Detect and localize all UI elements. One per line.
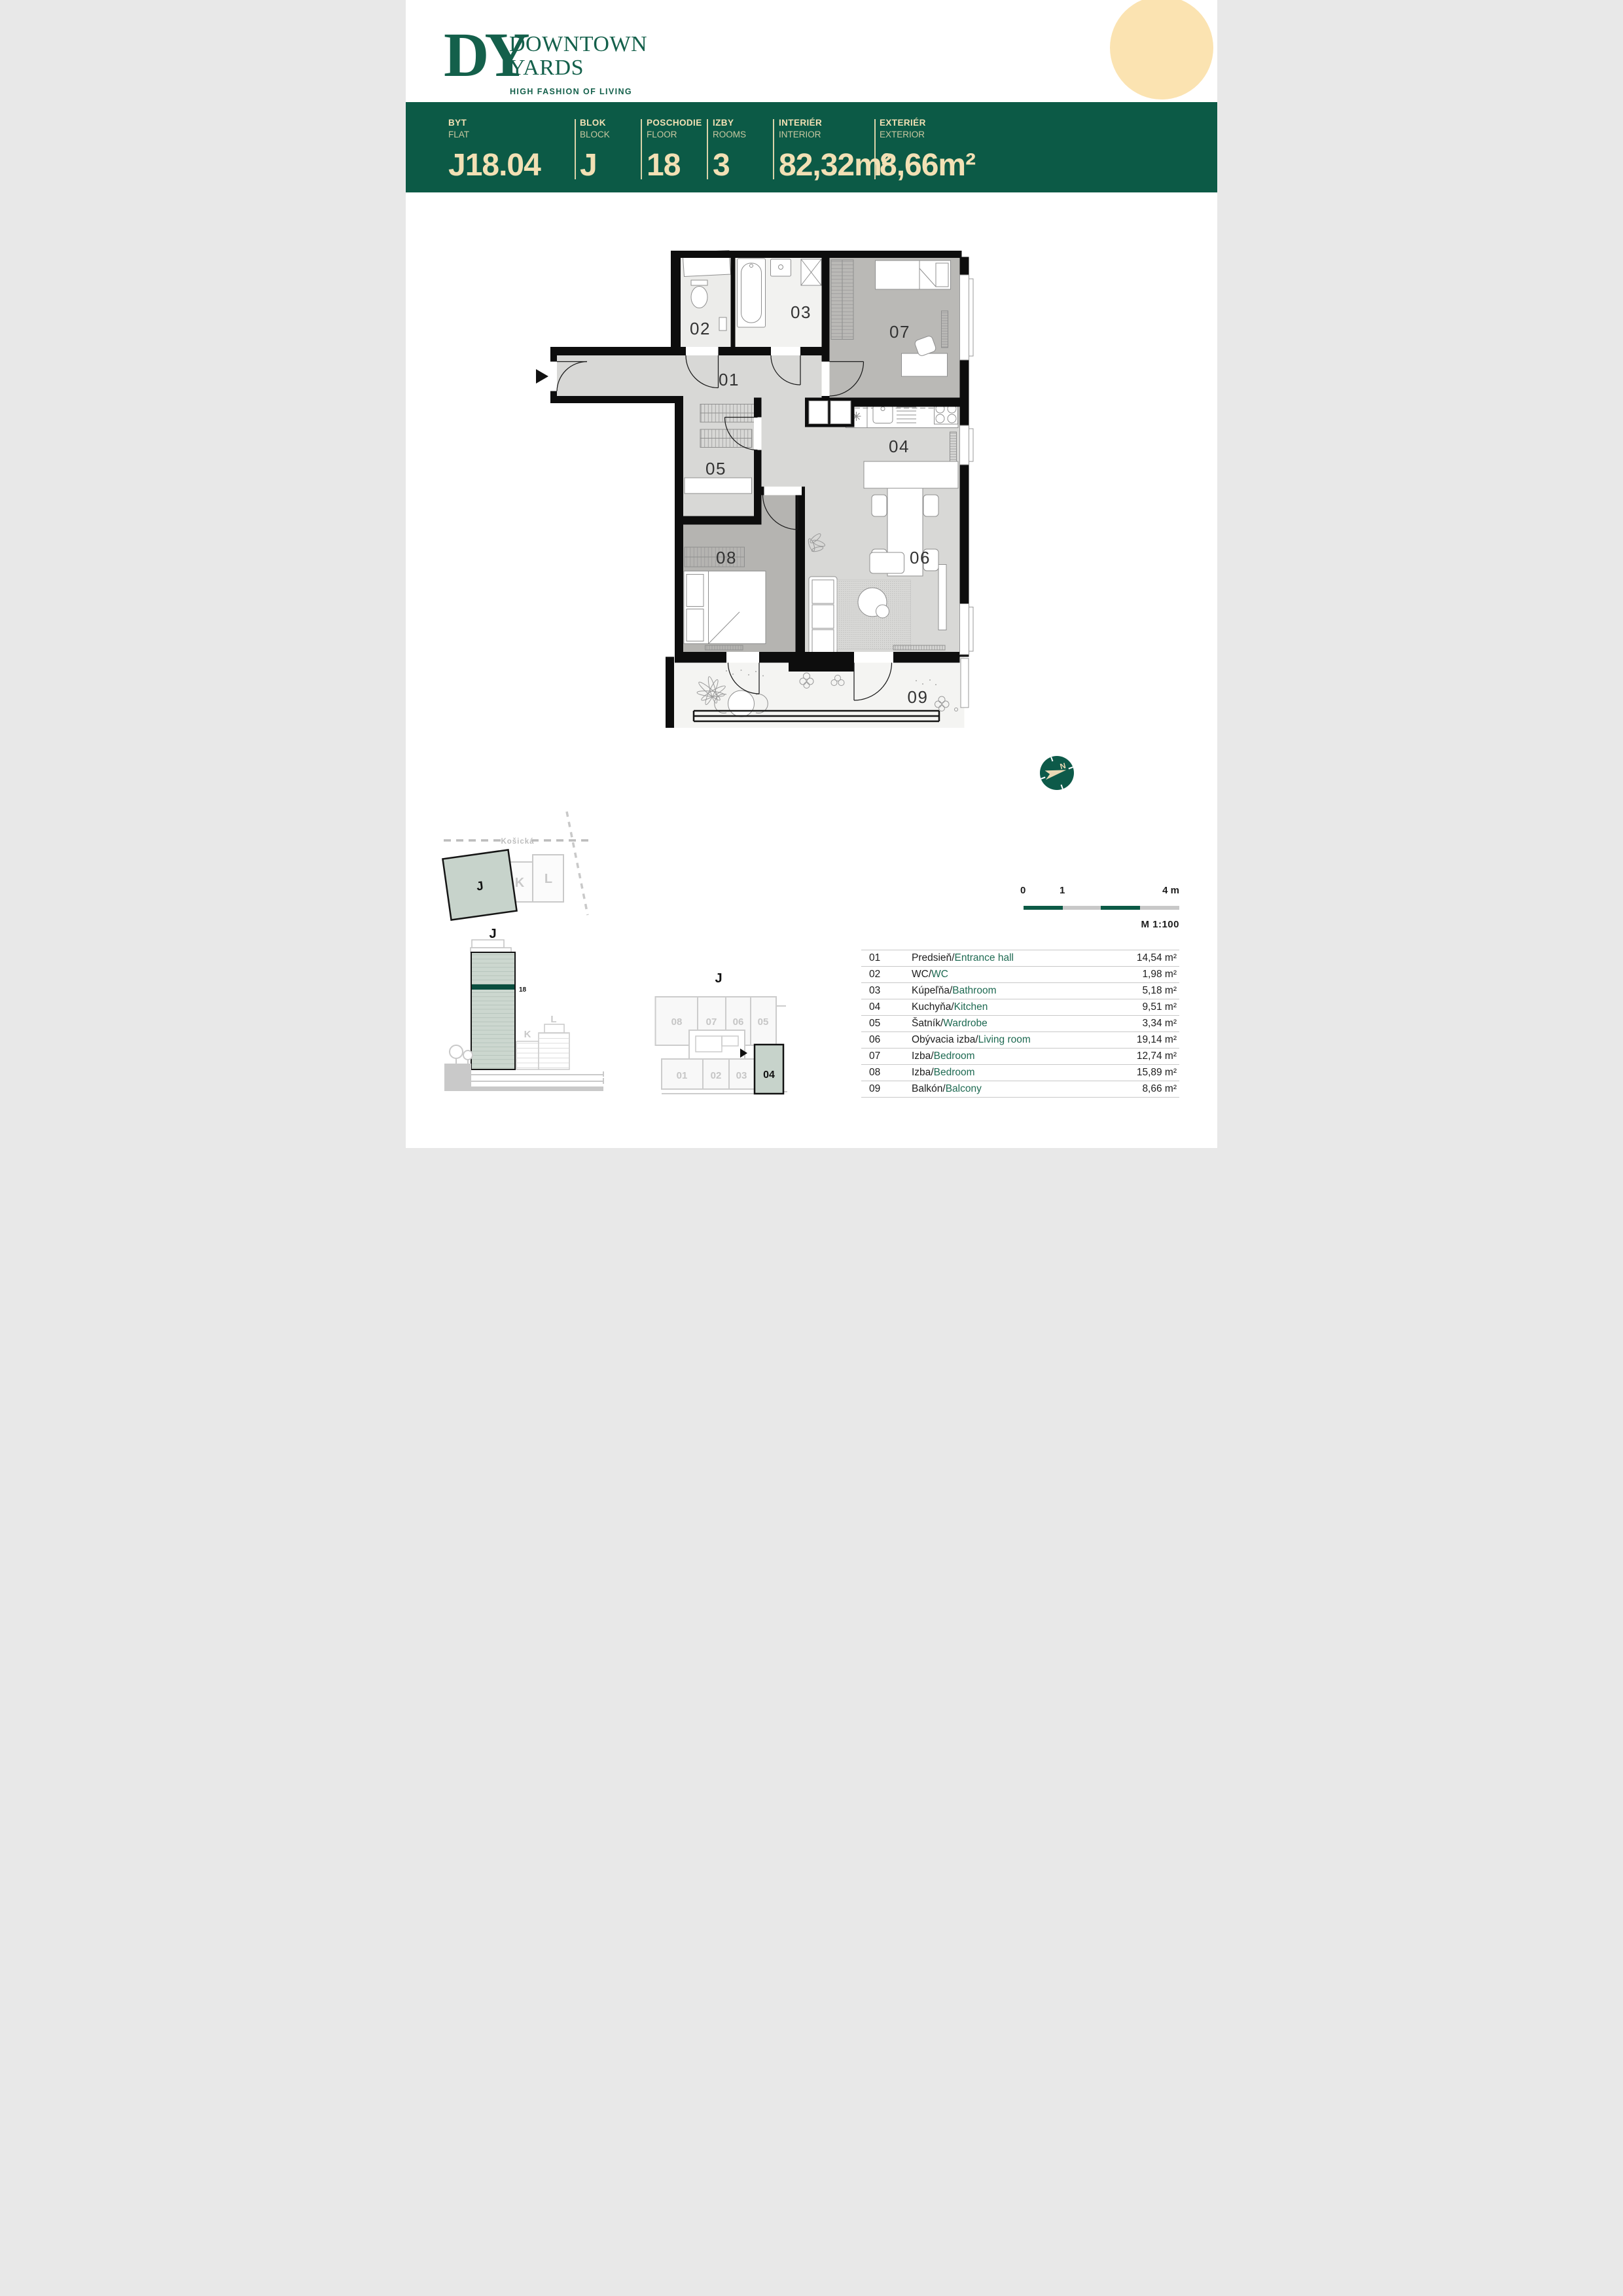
block-k-label: K: [515, 876, 525, 890]
tree-icon: [450, 1045, 473, 1064]
unit-04-number: 04: [763, 1069, 775, 1081]
divider: [707, 119, 708, 179]
small-basin-icon: [719, 317, 726, 331]
decorative-circle: [1110, 0, 1213, 99]
radiator-icon: [950, 432, 957, 465]
highlighted-floor-stripe: [471, 984, 515, 990]
chair-icon: [923, 495, 938, 516]
floor-plate-diagram: J 08 07 06 05 01 02 03 04: [647, 972, 787, 1100]
site-map: Košická J K L: [438, 808, 609, 923]
svg-text:08: 08: [671, 1016, 683, 1028]
svg-text:07: 07: [706, 1016, 717, 1028]
scale-tick: 4 m: [1162, 885, 1179, 896]
kitchen-island: [864, 461, 958, 488]
tower-title: J: [489, 927, 496, 941]
desk-icon: [902, 353, 948, 376]
core: [689, 1030, 745, 1059]
divider: [575, 119, 576, 179]
ground: [444, 1086, 603, 1091]
room-label-07: 07: [889, 322, 910, 342]
scale-tick: 1: [1060, 885, 1065, 896]
divider: [874, 119, 876, 179]
scale-bar: 0 1 4 m M 1:100: [1024, 885, 1179, 937]
plate-title: J: [715, 972, 722, 986]
brand-logo: DY DOWNTOWN YARDS HIGH FASHION OF LIVING: [444, 26, 666, 105]
neighbor-l-label: L: [550, 1014, 556, 1025]
planter: [444, 1064, 471, 1088]
svg-text:05: 05: [758, 1016, 769, 1028]
legend-row: 07 Izba/Bedroom 12,74 m²: [861, 1048, 1179, 1064]
room-label-06: 06: [910, 548, 931, 567]
vent-grille-icon: [893, 645, 945, 650]
unit-header-band: BYT FLAT J18.04 BLOK BLOCK J POSCHODIE F…: [406, 102, 1217, 192]
podium-lines: [471, 1071, 603, 1084]
compass-icon: N: [1039, 755, 1075, 791]
floor-plan: 01 02 03 04 05 06 07 08 09: [530, 249, 995, 805]
legend-row: 06 Obývacia izba/Living room 19,14 m²: [861, 1031, 1179, 1048]
brand-tagline: HIGH FASHION OF LIVING: [510, 87, 632, 96]
vent-grille-icon: [705, 645, 743, 650]
scale-bar-segments: [1024, 906, 1179, 910]
neighbor-k-label: K: [524, 1029, 531, 1040]
shelf-icon: [685, 478, 752, 493]
legend-row: 05 Šatník/Wardrobe 3,34 m²: [861, 1015, 1179, 1031]
toilet-icon: [691, 287, 707, 308]
room-label-01: 01: [719, 370, 740, 389]
divider: [641, 119, 642, 179]
room-label-02: 02: [690, 319, 711, 338]
legend-row: 03 Kúpeľňa/Bathroom 5,18 m²: [861, 982, 1179, 999]
block-j-highlighted: J: [442, 850, 516, 920]
svg-text:03: 03: [736, 1070, 747, 1081]
divider: [773, 119, 774, 179]
legend-row: 01 Predsieň/Entrance hall 14,54 m²: [861, 950, 1179, 966]
boundary-line: [567, 812, 588, 915]
room-label-05: 05: [705, 459, 726, 478]
roof-step: [471, 948, 511, 952]
room-label-09: 09: [908, 687, 929, 707]
tv-board-icon: [938, 565, 946, 630]
room-label-03: 03: [791, 302, 811, 322]
street-label: Košická: [501, 838, 534, 846]
building-elevation: J 18 K L: [442, 926, 607, 1093]
room-label-04: 04: [889, 437, 910, 456]
balcony-table-icon: [728, 691, 755, 717]
room-legend: 01 Predsieň/Entrance hall 14,54 m² 02 WC…: [861, 950, 1179, 1098]
armchair-icon: [870, 552, 904, 573]
scale-ratio: M 1:100: [1141, 919, 1179, 930]
legend-row: 04 Kuchyňa/Kitchen 9,51 m²: [861, 999, 1179, 1015]
block-l-label: L: [544, 872, 552, 886]
shaft: [830, 401, 851, 424]
brand-name: DOWNTOWN YARDS: [509, 33, 647, 80]
shaft: [809, 401, 828, 424]
room-label-08: 08: [716, 548, 737, 567]
legend-row: 08 Izba/Bedroom 15,89 m²: [861, 1064, 1179, 1081]
neighbor-l-roof: [544, 1024, 564, 1033]
scale-tick: 0: [1020, 885, 1026, 896]
floor-number: 18: [519, 986, 527, 994]
svg-text:01: 01: [677, 1070, 688, 1081]
brochure-page: DY DOWNTOWN YARDS HIGH FASHION OF LIVING…: [406, 0, 1217, 1148]
roof-step: [472, 940, 504, 948]
chair-icon: [872, 495, 887, 516]
radiator-icon: [942, 311, 948, 348]
toilet-icon: [691, 280, 707, 285]
svg-text:06: 06: [733, 1016, 744, 1028]
legend-row: 02 WC/WC 1,98 m²: [861, 966, 1179, 982]
entrance-arrow-icon: [536, 369, 548, 384]
svg-text:02: 02: [711, 1070, 722, 1081]
legend-row: 09 Balkón/Balcony 8,66 m²: [861, 1081, 1179, 1097]
